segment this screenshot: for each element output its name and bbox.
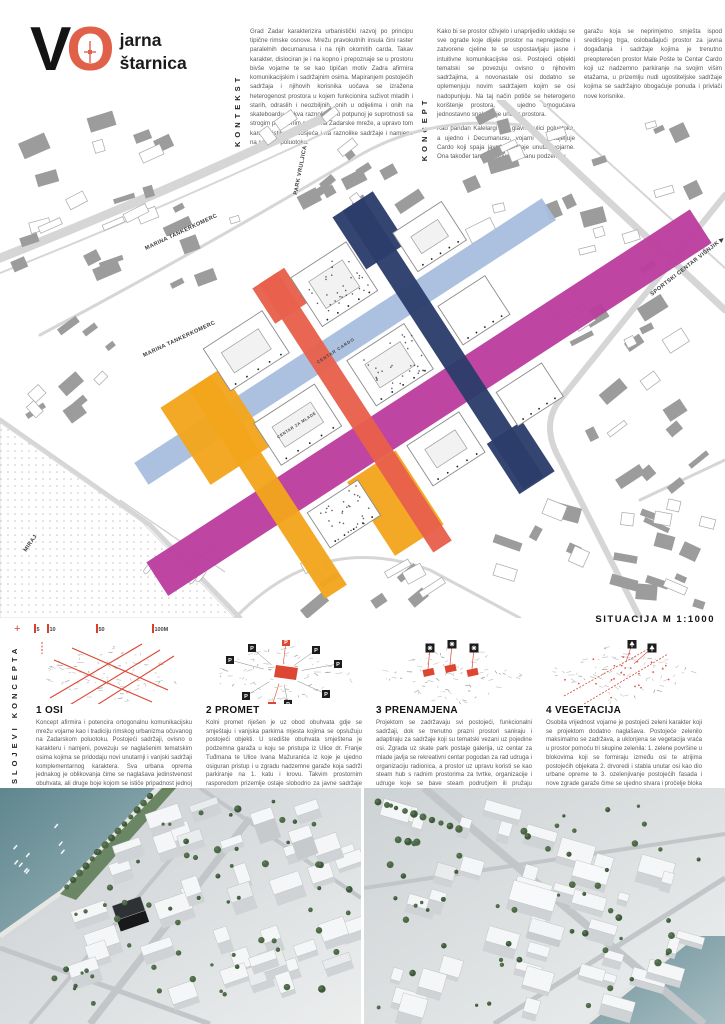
layer-text: Osobita vrijednost vojarne je postojeći … [546, 719, 702, 797]
svg-text:P: P [284, 640, 288, 646]
logo-letter-o: O [66, 24, 114, 77]
layer-title: 4 VEGETACIJA [546, 705, 702, 716]
scale-tick-icon [34, 624, 36, 633]
layers-label: SLOJEVI KONCEPTA [10, 644, 19, 784]
scale-tick-label: 50 [99, 627, 105, 633]
crosshair-icon [82, 41, 98, 63]
svg-text:P: P [244, 694, 248, 700]
diagram-vegetacija [546, 640, 702, 704]
layer-text: Koncept afirmira i potencira ortogonalnu… [36, 719, 192, 797]
layer-title: 1 OSI [36, 705, 192, 716]
logo-wordmark: jarna štarnica [120, 24, 187, 75]
layer-text: Kolni promet riješen je uz obod obuhvata… [206, 719, 362, 797]
logo-word-1: jarna [120, 29, 187, 52]
logo-letter-v: V [30, 24, 66, 77]
layer-vegetacija: 4 VEGETACIJA Osobita vrijednost vojarne … [546, 640, 702, 797]
svg-text:P: P [286, 702, 290, 704]
svg-text:P: P [228, 658, 232, 664]
scale-tick-label: 100M [155, 627, 169, 633]
render-aerial-right [364, 788, 725, 1024]
scale-tick-label: 10 [50, 627, 56, 633]
svg-text:P: P [250, 646, 254, 652]
layer-osi: 1 OSI Koncept afirmira i potencira ortog… [36, 640, 192, 797]
diagram-prenamjena [376, 640, 532, 704]
scale-bar: + 5 10 50 100M [14, 623, 174, 638]
concept-layers: SLOJEVI KONCEPTA 1 OSI Koncept afirmira … [0, 640, 725, 788]
render-aerial-left [0, 788, 361, 1024]
scale-tick-label: 5 [37, 627, 40, 633]
scale-tick-icon [152, 624, 154, 633]
diagram-promet: PPPPPPPPP [206, 640, 362, 704]
scale-tick-icon [47, 624, 49, 633]
svg-text:P: P [314, 648, 318, 654]
logo-word-2: štarnica [120, 52, 187, 75]
site-plan-map: CENTAR CARDOCENTAR ZA MLADEPARK VRULJICA… [0, 100, 725, 640]
project-logo: V O jarna štarnica [30, 24, 187, 77]
diagram-osi [36, 640, 192, 704]
svg-text:P: P [324, 692, 328, 698]
svg-text:MARINA TANKERKOMERC: MARINA TANKERKOMERC [144, 213, 218, 252]
registration-cross-icon: + [14, 623, 20, 635]
svg-text:P: P [336, 662, 340, 668]
site-plan-svg: CENTAR CARDOCENTAR ZA MLADEPARK VRULJICA… [0, 100, 725, 618]
layer-prenamjena: 3 PRENAMJENA Projektom se zadržavaju svi… [376, 640, 532, 797]
layer-text: Projektom se zadržavaju svi postojeći, f… [376, 719, 532, 797]
presentation-board: V O jarna štarnica KONTEKST Grad Zadar k… [0, 0, 725, 1024]
koncept-text-2: garažu koja se neprimjetno smješta ispod… [584, 27, 722, 101]
layer-title: 2 PROMET [206, 705, 362, 716]
render-strip [0, 788, 725, 1024]
layer-promet: PPPPPPPPP 2 PROMET Kolni promet riješen … [206, 640, 362, 797]
layer-title: 3 PRENAMJENA [376, 705, 532, 716]
map-caption: SITUACIJA M 1:1000 [595, 614, 715, 625]
svg-text:MARINA TANKERKOMERC: MARINA TANKERKOMERC [142, 320, 216, 359]
scale-tick-icon [96, 624, 98, 633]
